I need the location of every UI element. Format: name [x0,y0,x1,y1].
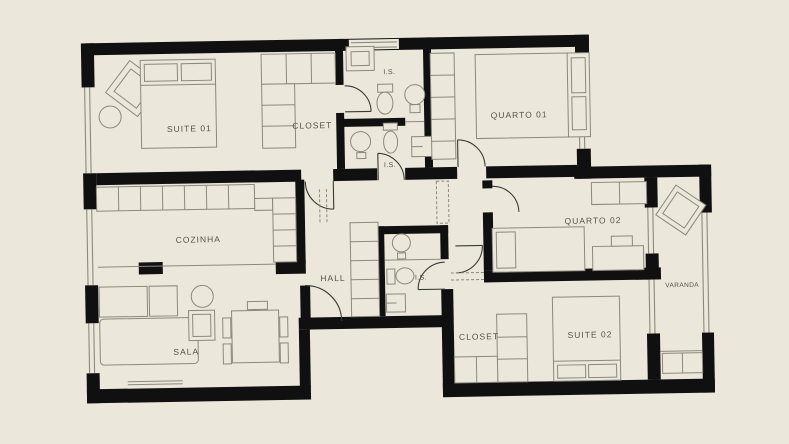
window-suite01-left2 [90,87,92,173]
is2-fixtures [350,122,434,158]
label-is01: I.S. [383,69,395,76]
window-sala-left [89,323,90,373]
is2-toilet-bowl [383,131,397,153]
sala-chair-left1 [223,318,231,338]
glass-suite02-varanda2 [654,279,655,333]
wall-extension-top [574,164,711,178]
sala-chair-top [247,301,267,309]
sala-rug-line [128,381,183,382]
suite02-pillow-right [589,364,617,377]
wall-main-seg4 [486,165,591,179]
dash-hall-opening [319,189,320,223]
cozinha-sala-counter-line [98,264,276,267]
door-suite02-arc [455,245,482,272]
sala-sofa-cushion1 [99,286,148,317]
label-is02: I.S. [384,162,396,169]
is2-sink [350,131,370,151]
is2-toilet-tank [383,123,397,130]
label-suite01: SUITE 01 [167,123,212,134]
wall-q02-left-a [482,180,492,188]
closet01-shelves [261,53,337,148]
label-quarto02: QUARTO 02 [564,215,621,226]
quarto01-pillow-bottom [572,97,587,130]
wall-main-seg2 [333,168,377,181]
wall-is3-right [440,225,449,259]
quarto01-furniture [430,51,591,160]
wall-sala-bottom [87,385,311,403]
is1-toilet-tank [378,84,393,92]
wall-cozinha-chunk1 [139,262,163,274]
label-closet01: CLOSET [292,120,332,131]
suite01-side-table [99,106,121,128]
is1-sink-basin [351,51,369,65]
is3-sink-stem [398,253,406,259]
quarto02-furniture [491,182,648,273]
is2-sink-stem [357,152,366,158]
window-cozinha-left2 [92,209,93,285]
is3-fixtures [384,233,441,312]
label-suite02: SUITE 02 [567,329,612,340]
wall-left-corner [81,43,95,87]
glass-suite02-varanda [649,280,650,334]
is3-counter-line [385,259,441,260]
varanda-furniture [655,185,708,374]
label-cozinha: COZINHA [176,234,221,245]
door-is1-arc [345,85,371,111]
quarto02-desk-item [611,236,632,246]
varanda-chair [656,185,706,235]
varanda-railing [702,213,704,333]
wall-main-seg1 [96,170,301,186]
is3-sink [392,234,410,252]
wall-left-chunk2 [85,285,99,323]
label-varanda: VARANDA [665,282,699,290]
sala-chair-right2 [280,343,288,363]
dash-corridor-line2 [451,279,484,280]
cozinha-furniture [96,184,296,265]
is3-toilet-tank [387,269,395,284]
label-sala: SALA [173,346,199,356]
cozinha-counter-top [96,184,254,211]
dash-corridor-cabinet [436,181,449,223]
wall-closet-is-a [335,39,344,85]
label-quarto01: QUARTO 01 [491,109,548,120]
sala-round-table [191,285,213,307]
is1-sink-stem [410,105,420,113]
window-sala-left2 [94,323,95,373]
suite02-pillow-left [558,365,586,378]
window-suite01-left [85,87,87,173]
sala-chair-left2 [223,344,231,364]
wall-main-seg3 [405,167,457,180]
window-cozinha-left [87,209,88,285]
wall-is3-top [376,225,448,234]
quarto02-pillow [496,232,516,268]
glass-quarto02-varanda2 [653,207,654,253]
wall-varanda-right-bottom [702,332,715,392]
door-quarto01-arc [458,139,485,166]
label-is03: I.S. [415,274,427,281]
hall-shelf [350,222,380,316]
closet02-shelves [454,314,528,383]
varanda-railing2 [707,213,709,333]
sala-rug-line2 [128,384,183,385]
varanda-floor-line [660,351,702,352]
quarto02-desk [592,246,643,271]
label-closet02: CLOSET [459,331,499,342]
wall-step [441,289,455,393]
sala-sofa-cushion2 [149,286,178,316]
floor-plan-canvas: SUITE 01 CLOSET I.S. I.S. QUARTO 01 COZI… [0,0,789,444]
quarto01-pillow-top [571,58,586,93]
wall-varanda-left-b [646,253,659,279]
suite01-furniture [98,59,217,149]
quarto01-wardrobe [430,53,456,159]
wall-varanda-left-c [647,333,661,379]
wall-sala-right [299,330,311,388]
cozinha-counter-corner [255,198,273,210]
label-hall: HALL [320,273,345,283]
sala-sofa-seat [100,317,199,365]
floor-plan-drawing: SUITE 01 CLOSET I.S. I.S. QUARTO 01 COZI… [0,0,789,444]
glass-quarto02-varanda [648,208,649,254]
sala-chair-right1 [280,317,288,337]
is1-toilet-bowl [377,92,393,114]
dash-corridor-line [451,272,484,273]
wall-hall-bottom [299,315,453,330]
sala-furniture [99,284,289,385]
sala-dining-table [232,310,280,363]
suite01-pillow-right [181,63,211,81]
dash-hall-opening2 [326,189,327,223]
is1-fixtures [346,45,425,114]
is1-pedestal-sink [405,84,425,104]
door-quarto02-arc [492,186,518,212]
suite01-pillow-left [144,64,177,82]
is3-toilet-bowl [396,268,414,284]
wall-left-chunk1 [83,173,97,209]
entrance-door-leaf [300,285,311,323]
